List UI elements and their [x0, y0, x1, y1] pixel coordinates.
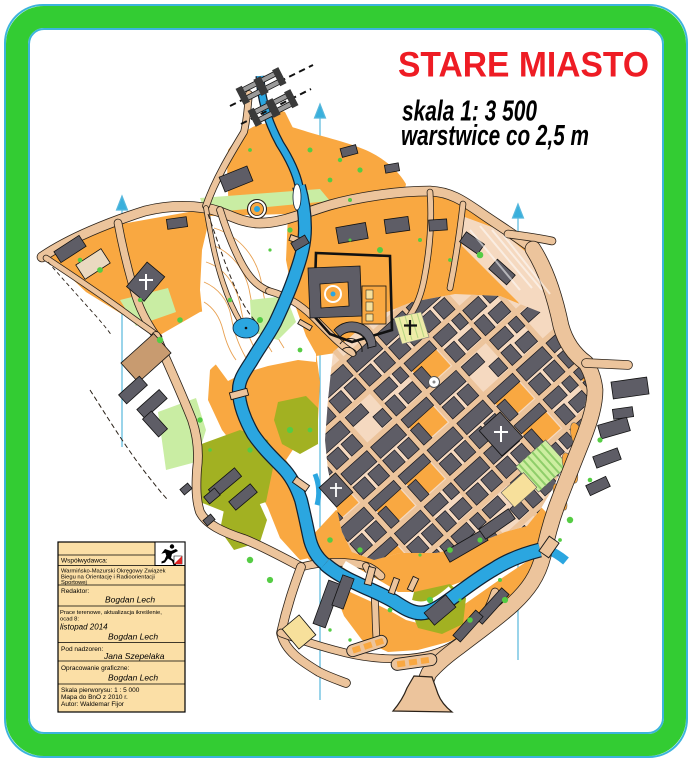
svg-text:Współwydawca:: Współwydawca:: [61, 558, 108, 565]
svg-text:Bogdan Lech: Bogdan Lech: [108, 673, 158, 683]
svg-text:Bogdan Lech: Bogdan Lech: [105, 595, 155, 605]
svg-text:Skala pierworysu: 1 : 5 000: Skala pierworysu: 1 : 5 000: [61, 687, 140, 694]
svg-text:Sportowej: Sportowej: [61, 580, 87, 586]
svg-text:Jana Szepelaka: Jana Szepelaka: [103, 651, 165, 661]
svg-text:Pod nadzoren:: Pod nadzoren:: [61, 646, 103, 653]
svg-text:Opracowanie graficzne:: Opracowanie graficzne:: [61, 665, 129, 672]
svg-text:warstwice co 2,5 m: warstwice co 2,5 m: [401, 120, 589, 152]
svg-text:Mapa do BnO z 2010 r.: Mapa do BnO z 2010 r.: [61, 694, 128, 701]
svg-text:Autor: Waldemar Fijor: Autor: Waldemar Fijor: [61, 701, 125, 708]
svg-text:Redaktor:: Redaktor:: [61, 588, 89, 595]
svg-text:listopad 2014: listopad 2014: [60, 623, 108, 632]
svg-text:Prace terenowe, aktualizacja i: Prace terenowe, aktualizacja ikreślenie,: [60, 610, 162, 616]
svg-text:Bogdan Lech: Bogdan Lech: [108, 632, 158, 642]
svg-text:STARE MIASTO: STARE MIASTO: [398, 45, 649, 85]
